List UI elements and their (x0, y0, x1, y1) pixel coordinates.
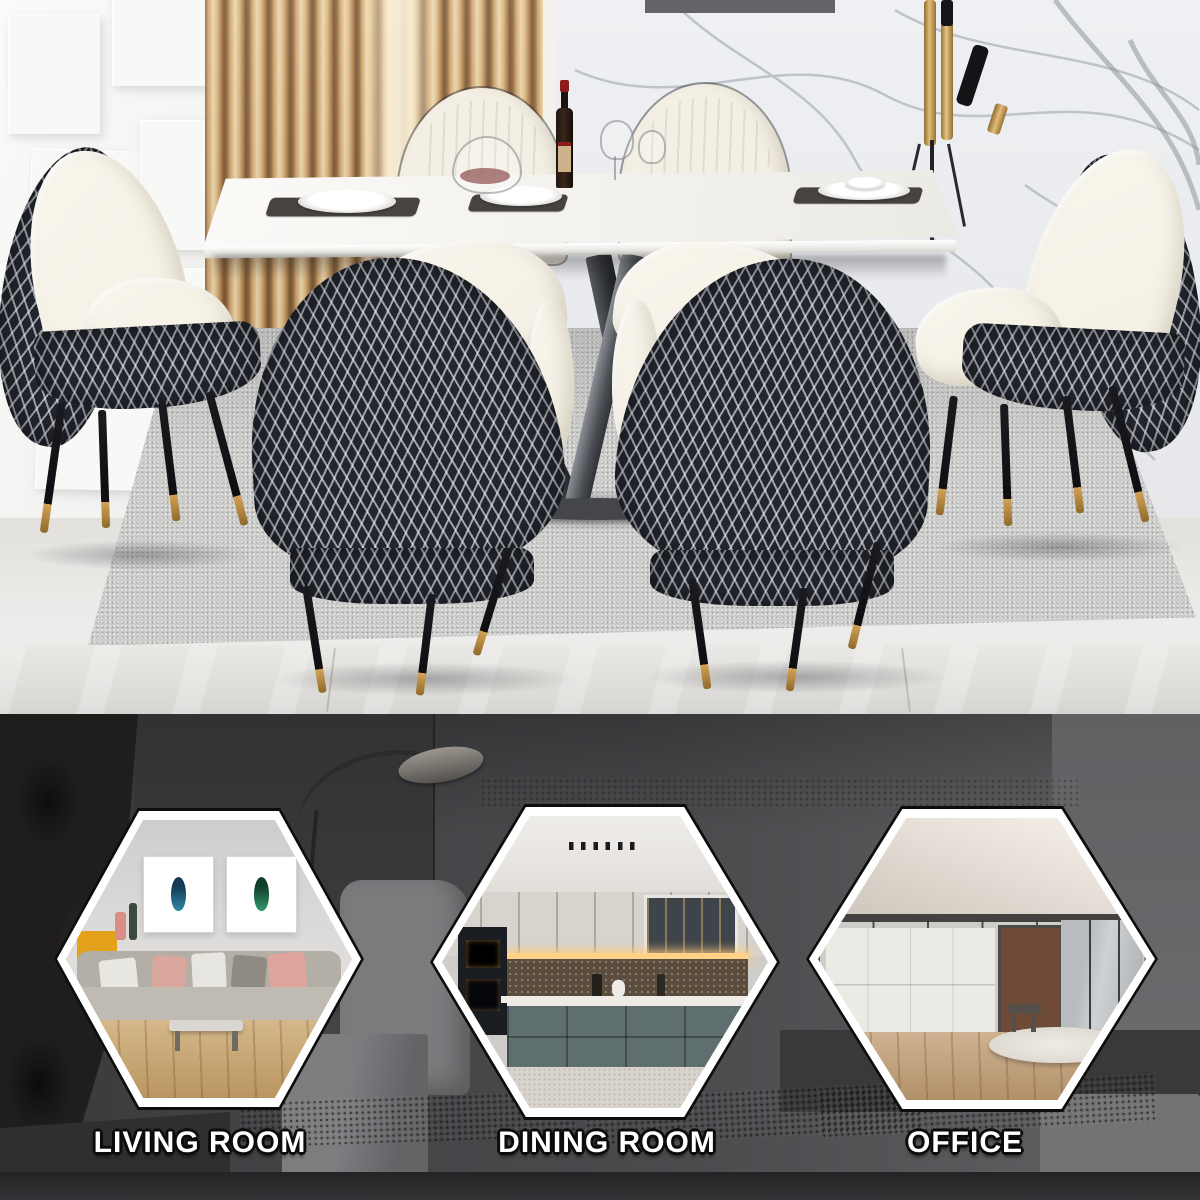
banner-bottom-strip (0, 1172, 1200, 1200)
bottle-label (558, 142, 571, 172)
sofa-pillow (268, 952, 308, 991)
beetle-art (171, 877, 186, 912)
decor-cactus (129, 903, 138, 939)
coffee-table-leg (175, 1031, 181, 1050)
decor-vase (115, 912, 126, 940)
coffee-table (169, 1020, 243, 1031)
glass-frame (1089, 920, 1091, 1038)
wine-glass-stem (614, 156, 616, 180)
sofa-seat (72, 987, 347, 1023)
countertop (501, 996, 755, 1003)
glass-frame (1118, 920, 1120, 1038)
chair-skirt (650, 550, 894, 606)
category-label-living-room: LIVING ROOM (0, 1126, 410, 1160)
wall-artwork (645, 0, 835, 13)
room-categories-banner: LIVING ROOM DINING ROOM OFFICE (0, 714, 1200, 1200)
hexagon-card-dining-room (430, 804, 780, 1120)
counter-bottle (592, 974, 602, 997)
dinner-plate (298, 190, 396, 213)
wardrobe (825, 928, 996, 1032)
wine-glass (600, 120, 634, 160)
floor-reflection (0, 645, 1200, 714)
wine-glass (638, 130, 666, 164)
halftone-strip (480, 778, 1080, 808)
chair-shadow (25, 540, 255, 570)
coffee-table-leg (232, 1031, 238, 1050)
chair-shadow (935, 532, 1185, 562)
wall-panel (8, 14, 100, 134)
counter-bowl (612, 980, 625, 998)
beetle-art (254, 877, 269, 912)
oven-column (458, 927, 507, 1035)
glass-cabinet (644, 895, 738, 959)
ceiling-vent (569, 842, 641, 849)
dining-set-photo (0, 0, 1200, 714)
sofa-pillow (191, 953, 227, 991)
chair-silhouette-leg (1012, 1013, 1017, 1033)
picture-frame (226, 856, 297, 933)
sofa-pillow (230, 955, 267, 991)
living-room-photo (66, 820, 352, 1098)
lamp-pole-cap (941, 0, 953, 26)
lamp-pole (924, 0, 936, 146)
chair-silhouette (1008, 1004, 1041, 1012)
picture-frame (143, 856, 214, 933)
oven-screen (466, 940, 500, 968)
small-bowl (845, 177, 885, 189)
decanter-wine (460, 168, 510, 184)
counter-bottle (657, 974, 665, 997)
sofa-pillow (151, 955, 188, 991)
bottle-cap (560, 80, 569, 92)
category-label-office: OFFICE (755, 1126, 1175, 1160)
wall-panel (112, 0, 212, 86)
dining-room-photo (442, 816, 768, 1108)
backsplash (507, 959, 748, 997)
furniture-product-image: LIVING ROOM DINING ROOM OFFICE (0, 0, 1200, 1200)
oven-screen (466, 979, 500, 1011)
island-cabinets (507, 1003, 748, 1070)
hexagon-border (433, 807, 777, 1117)
chair-silhouette-leg (1031, 1013, 1036, 1033)
category-label-dining-room: DINING ROOM (397, 1126, 817, 1160)
